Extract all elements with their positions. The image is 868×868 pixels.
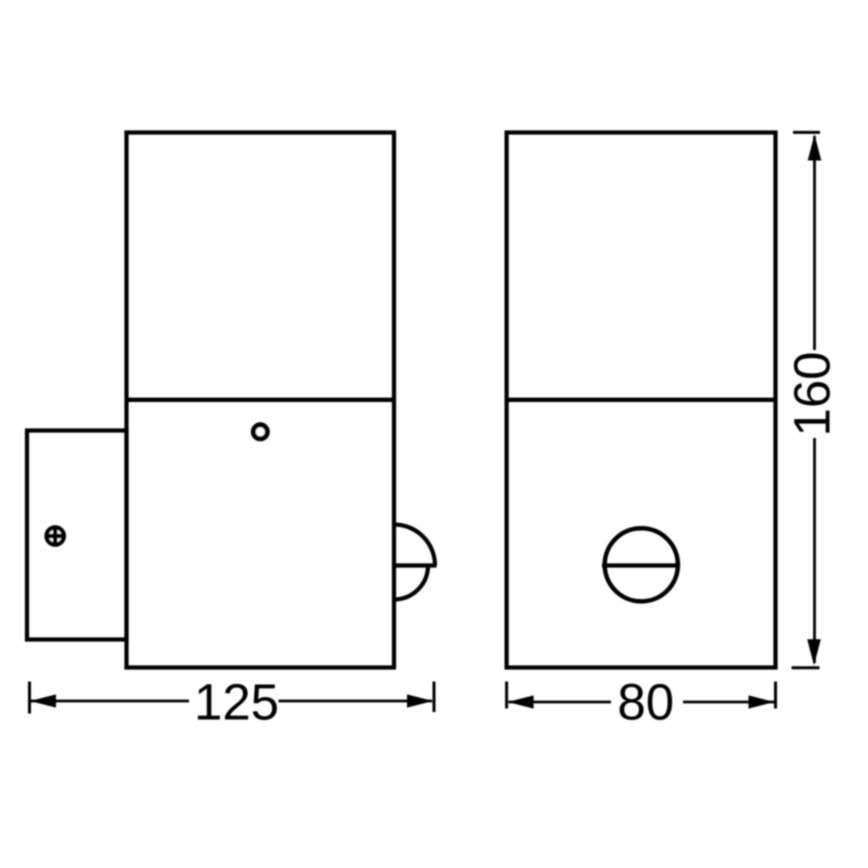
svg-text:80: 80 [617, 674, 674, 731]
svg-text:125: 125 [194, 674, 279, 731]
svg-text:160: 160 [784, 351, 841, 436]
